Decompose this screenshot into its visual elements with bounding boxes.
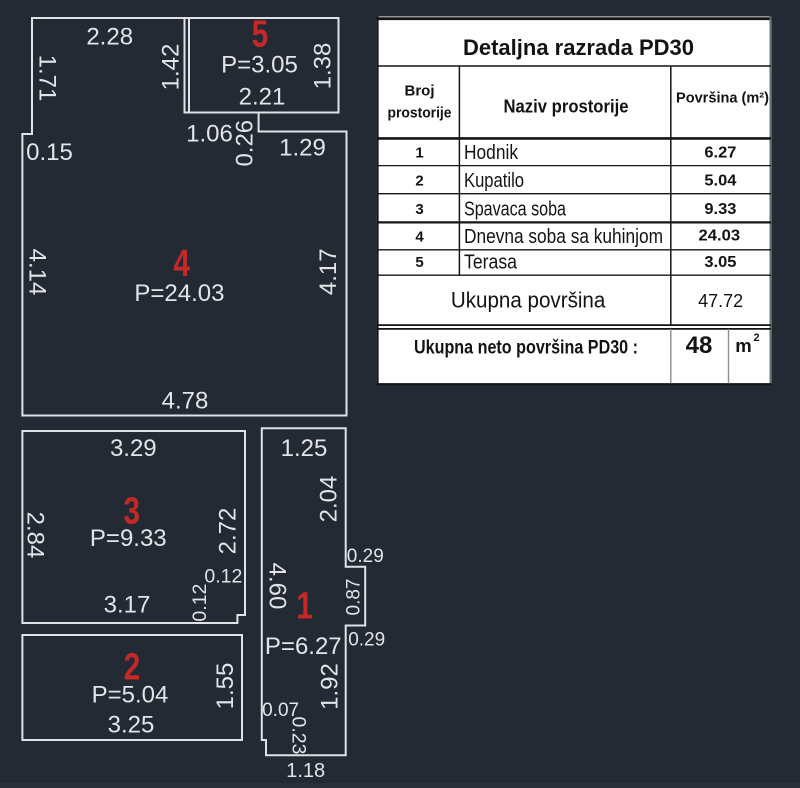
svg-text:Ukupna neto površina PD30 :: Ukupna neto površina PD30 :: [414, 337, 638, 359]
svg-text:2.04: 2.04: [315, 476, 342, 523]
svg-text:1.55: 1.55: [212, 663, 239, 710]
svg-text:2.84: 2.84: [21, 512, 48, 559]
svg-text:Kupatilo: Kupatilo: [464, 170, 524, 192]
svg-text:4.17: 4.17: [315, 248, 342, 295]
svg-text:6.27: 6.27: [704, 145, 736, 162]
svg-text:prostorije: prostorije: [388, 105, 452, 122]
svg-text:2.72: 2.72: [215, 508, 242, 555]
svg-text:4.14: 4.14: [23, 249, 50, 296]
svg-text:1: 1: [415, 145, 423, 162]
svg-text:Dnevna soba sa kuhinjom: Dnevna soba sa kuhinjom: [464, 226, 663, 248]
svg-text:2: 2: [753, 332, 759, 344]
svg-text:2: 2: [124, 646, 140, 688]
svg-text:0.15: 0.15: [26, 139, 73, 166]
svg-text:0.29: 0.29: [348, 630, 385, 651]
svg-text:3.17: 3.17: [104, 591, 151, 618]
svg-text:3: 3: [415, 201, 423, 218]
svg-text:5.04: 5.04: [704, 173, 736, 190]
svg-text:Naziv prostorije: Naziv prostorije: [504, 96, 629, 117]
svg-text:3.29: 3.29: [110, 435, 157, 462]
svg-text:2: 2: [415, 173, 423, 190]
svg-text:3.25: 3.25: [108, 712, 155, 739]
svg-text:1.25: 1.25: [281, 435, 328, 462]
svg-text:Spavaca soba: Spavaca soba: [464, 198, 567, 220]
svg-text:4.60: 4.60: [263, 563, 290, 610]
svg-text:0.12: 0.12: [189, 584, 211, 622]
svg-text:5: 5: [252, 13, 268, 55]
svg-text:0.26: 0.26: [231, 120, 258, 167]
svg-text:0.23: 0.23: [288, 717, 310, 755]
svg-text:m: m: [735, 335, 751, 356]
svg-text:Broj: Broj: [405, 83, 435, 100]
svg-text:0.87: 0.87: [343, 579, 364, 616]
svg-text:1.18: 1.18: [286, 760, 325, 782]
svg-text:3.05: 3.05: [704, 254, 736, 271]
svg-text:3: 3: [123, 490, 139, 532]
svg-text:P=6.27: P=6.27: [265, 633, 342, 660]
svg-text:1.06: 1.06: [186, 121, 233, 148]
svg-text:47.72: 47.72: [698, 291, 743, 311]
svg-text:2.21: 2.21: [239, 84, 286, 111]
svg-text:48: 48: [686, 332, 713, 359]
svg-text:2.28: 2.28: [86, 24, 133, 51]
svg-text:Hodnik: Hodnik: [464, 142, 519, 164]
svg-text:24.03: 24.03: [699, 228, 741, 245]
svg-text:4: 4: [173, 243, 190, 285]
svg-text:4: 4: [415, 229, 424, 246]
svg-text:5: 5: [415, 254, 423, 271]
svg-text:0.29: 0.29: [347, 546, 384, 567]
svg-text:9.33: 9.33: [704, 201, 736, 218]
svg-text:1.38: 1.38: [309, 43, 336, 90]
svg-text:Terasa: Terasa: [464, 252, 518, 274]
svg-text:1: 1: [296, 585, 312, 627]
svg-text:1.42: 1.42: [157, 44, 184, 91]
svg-text:1.29: 1.29: [279, 135, 326, 162]
svg-text:Ukupna površina: Ukupna površina: [451, 288, 606, 313]
svg-text:1.92: 1.92: [316, 663, 343, 710]
svg-text:1.71: 1.71: [33, 55, 60, 102]
svg-text:Detaljna razrada PD30: Detaljna razrada PD30: [463, 35, 694, 60]
svg-text:Površina (m²): Površina (m²): [676, 91, 769, 107]
svg-text:4.78: 4.78: [162, 388, 209, 415]
